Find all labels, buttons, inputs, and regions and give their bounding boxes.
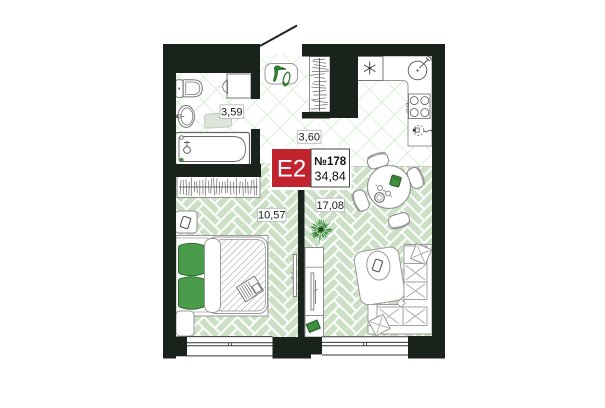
svg-text:3,60: 3,60	[299, 132, 320, 144]
svg-text:34,84: 34,84	[315, 170, 346, 184]
svg-text:№178: №178	[314, 156, 347, 168]
svg-text:3,59: 3,59	[221, 106, 242, 118]
svg-text:17,08: 17,08	[316, 200, 344, 212]
svg-text:E2: E2	[277, 156, 306, 183]
svg-text:10,57: 10,57	[258, 210, 286, 222]
